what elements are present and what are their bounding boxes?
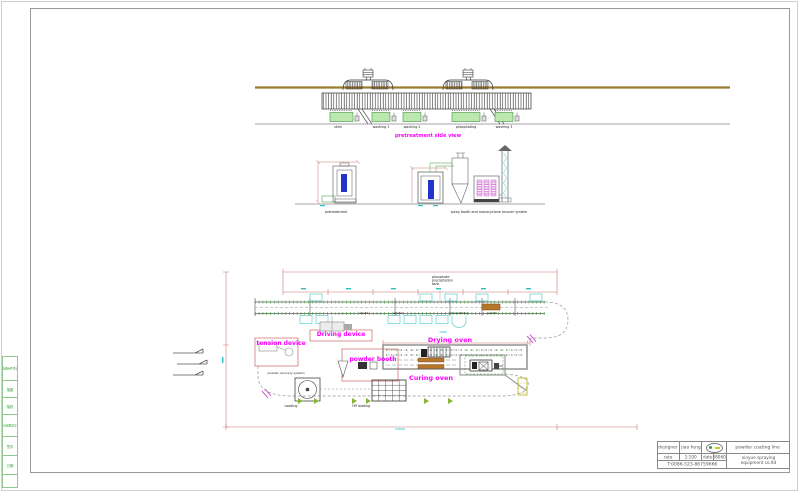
- spray-booth-section-label: spray booth and monocyclone recover syst…: [419, 211, 558, 217]
- dimension-tick-values: [222, 288, 531, 363]
- tank-label-washing-2: washing 2: [397, 126, 428, 132]
- strip-cell-trace: 描图: [3, 381, 17, 398]
- tank-label-washing-3: washing 3: [489, 126, 520, 132]
- drying-oven-fan: [421, 347, 450, 357]
- strip-cell-old-no: 旧底图总号: [3, 415, 17, 437]
- phone-cell: T:0086-523-86759666: [658, 461, 727, 468]
- spray-booth-section: [410, 166, 448, 206]
- company-name-cell: xinyue sprayingequipment co.ltd: [727, 454, 789, 468]
- strip-cell-sign: 签字: [3, 437, 17, 456]
- entry-ramp: [358, 109, 372, 124]
- tank-phosphating: [452, 113, 480, 122]
- tank-washing-3: [495, 113, 513, 122]
- pretreatment-section: [316, 160, 360, 206]
- scale-label-cell: rate: [658, 454, 680, 461]
- after-filter: [474, 176, 502, 202]
- pretreatment-section-label: pretreatment: [316, 211, 356, 217]
- workpiece-blue-2: [428, 180, 434, 199]
- up-arrow-icon: [498, 145, 512, 151]
- flow-arrows: [165, 344, 213, 380]
- strip-cell-check: 描校: [3, 398, 17, 415]
- oven-block: [383, 345, 527, 395]
- strip-cell-date: 日期: [3, 456, 17, 475]
- phosphate-tank-note: phosphateprecipitationtank: [432, 276, 470, 294]
- logo-ellipse-icon: [706, 443, 723, 453]
- project-title-cell: powder coating line: [727, 442, 789, 454]
- filter-grid: [372, 380, 406, 401]
- date-label-cell: date: [702, 454, 714, 461]
- tank-label-skim: skim: [331, 126, 345, 132]
- scale-value-cell: 1:100: [680, 454, 702, 461]
- spray-tunnel: [322, 93, 531, 109]
- revision-strip: 借通用件登记 描图 描校 旧底图总号 签字 日期: [2, 356, 18, 488]
- stage-label-phosphating: phosphating: [440, 312, 477, 318]
- powder-booth-label: powder booth: [349, 357, 396, 363]
- designer-label-cell: designer: [658, 442, 680, 454]
- total-dimension-value: 27000: [390, 428, 409, 434]
- stage-label-wash3: wash3: [482, 312, 501, 318]
- strip-cell-record: 借通用件登记: [3, 357, 17, 381]
- designer-name-cell: jiao feng: [680, 442, 702, 454]
- tank-skim: [330, 113, 353, 122]
- tank-label-phosphating: phosphating: [447, 126, 484, 132]
- loading-label: Loading: [279, 405, 303, 411]
- title-block: designer jiao feng rate 1:100 date 08060…: [657, 441, 790, 469]
- side-view-title: pretreatment side view: [395, 134, 461, 139]
- driving-motor: [320, 316, 352, 331]
- company-logo: [702, 442, 727, 454]
- tension-device-label: tension device: [256, 341, 305, 347]
- stage-label-wash2: wash2: [388, 312, 407, 318]
- tank-washing-1: [372, 113, 390, 122]
- exhaust-stack: [498, 145, 512, 202]
- powder-recovery-label: powder recovery system: [249, 372, 323, 378]
- powder-recovery-unit: [295, 378, 320, 401]
- pretreatment-side-view-drawing: [250, 60, 740, 145]
- monocyclone: [452, 153, 468, 203]
- drying-oven-label: Drying oven: [428, 337, 472, 344]
- workpiece-blue: [341, 174, 347, 192]
- stage-label-wash1: wash1: [354, 312, 373, 318]
- section-view-drawing: [290, 145, 650, 220]
- tank-label-washing-1: washing 1: [366, 126, 397, 132]
- date-value-cell: 080607: [714, 454, 727, 461]
- curing-oven-burner: [465, 356, 503, 374]
- tank-washing-2: [403, 113, 421, 122]
- curing-oven-label: Curing oven: [409, 375, 453, 382]
- recovery-ducts: [430, 163, 454, 172]
- oven-entry-orange: [482, 304, 500, 310]
- booth-internals: [338, 361, 377, 377]
- off-loading-label: Off loading: [345, 405, 378, 411]
- driving-device-label: Driving device: [317, 332, 366, 338]
